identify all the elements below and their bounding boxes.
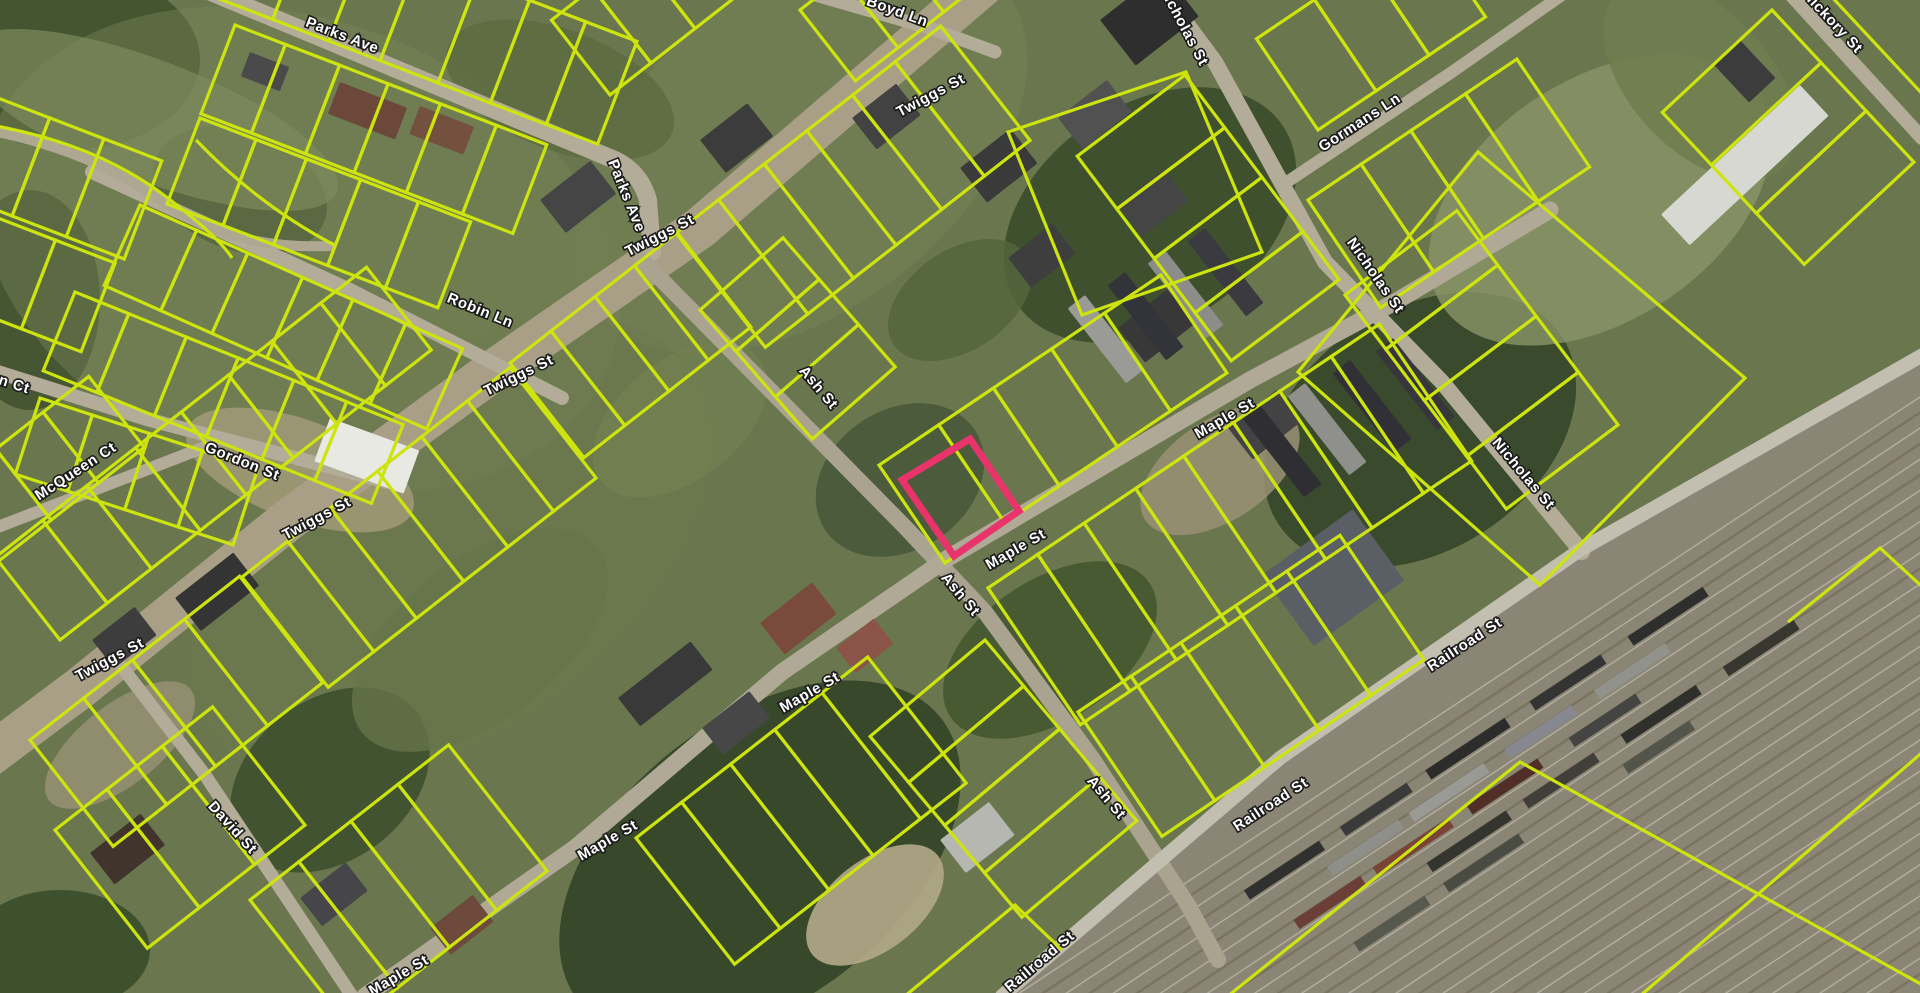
map-canvas[interactable]: Parks AveParks AveTwiggs StBoyd LnTwiggs… <box>0 0 1920 993</box>
map-stage[interactable]: Parks AveParks AveTwiggs StBoyd LnTwiggs… <box>0 0 1920 993</box>
